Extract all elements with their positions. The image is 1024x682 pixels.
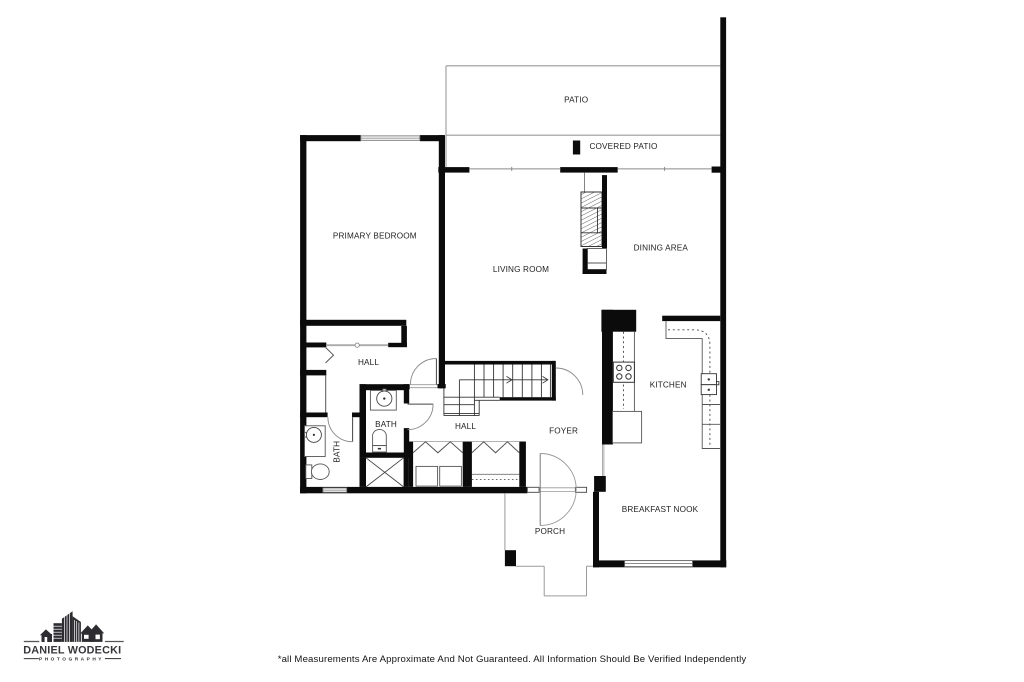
svg-text:KITCHEN: KITCHEN [650, 381, 687, 390]
svg-text:*all Measurements Are Approxim: *all Measurements Are Approximate And No… [278, 654, 747, 665]
svg-text:BATH: BATH [375, 420, 397, 429]
svg-text:DINING AREA: DINING AREA [634, 243, 689, 252]
svg-text:PHOTOGRAPHY: PHOTOGRAPHY [39, 657, 104, 663]
svg-text:PATIO: PATIO [564, 96, 588, 105]
svg-text:HALL: HALL [358, 358, 379, 367]
svg-text:DANIEL WODECKI: DANIEL WODECKI [23, 645, 121, 657]
svg-text:FOYER: FOYER [549, 426, 578, 435]
svg-text:LIVING ROOM: LIVING ROOM [493, 265, 549, 274]
svg-text:PRIMARY BEDROOM: PRIMARY BEDROOM [333, 232, 417, 241]
svg-text:BATH: BATH [332, 441, 341, 463]
svg-text:COVERED PATIO: COVERED PATIO [589, 142, 657, 151]
svg-text:BREAKFAST NOOK: BREAKFAST NOOK [622, 505, 699, 514]
svg-text:PORCH: PORCH [535, 527, 565, 536]
svg-text:HALL: HALL [455, 422, 476, 431]
